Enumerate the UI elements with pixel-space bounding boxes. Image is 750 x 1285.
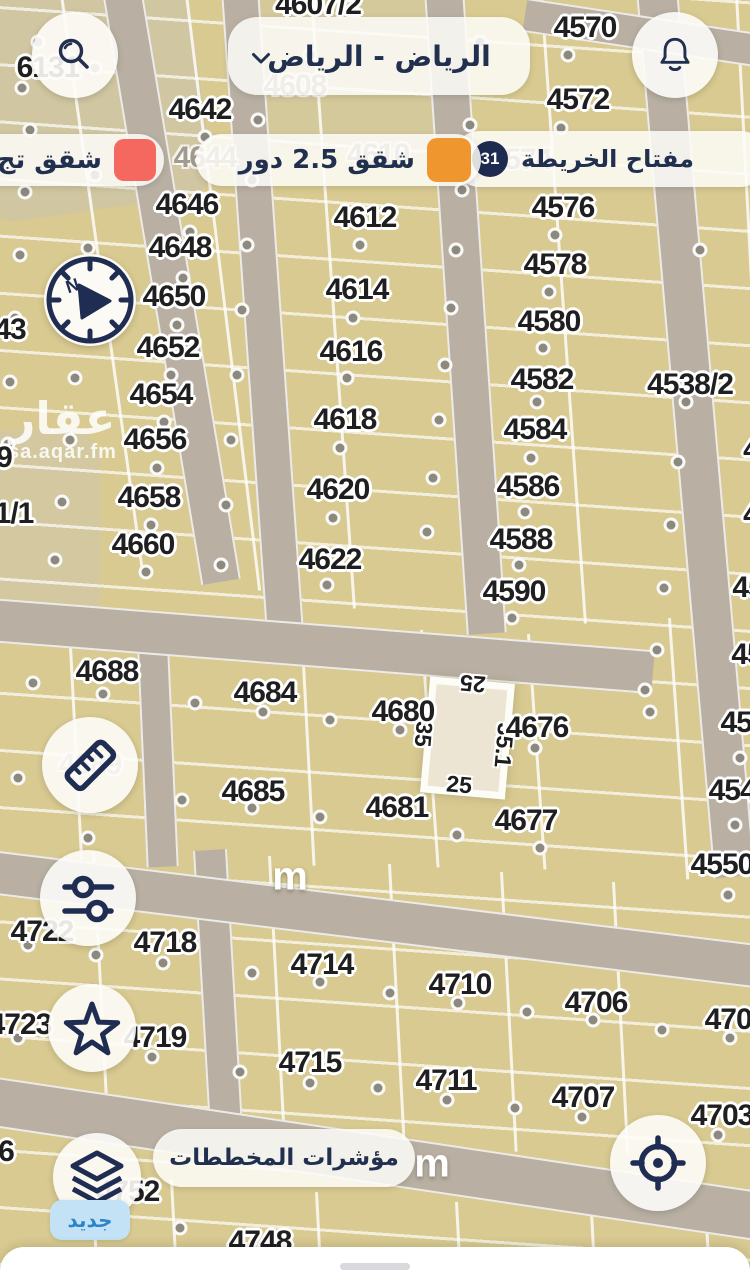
bottom-sheet-handle[interactable] (340, 1263, 410, 1270)
plot-number-label: 4570 (554, 11, 617, 45)
locate-me-button[interactable] (610, 1115, 706, 1211)
plot-dot (55, 495, 70, 510)
plot-dot (219, 498, 234, 513)
plot-dot (450, 828, 465, 843)
plot-dot (655, 1023, 670, 1038)
road-name-label: m (272, 855, 308, 900)
plot-number-label: 4702 (705, 1003, 750, 1037)
plot-number-label: 4548 (709, 774, 750, 808)
plot-dot (18, 185, 33, 200)
plot-dot (139, 565, 154, 580)
plot-dot (524, 451, 539, 466)
watermark: عقار sa.aqar.fm (8, 396, 117, 464)
plot-dimension-top: 25 (458, 669, 486, 698)
plot-dot (214, 558, 229, 573)
watermark-site: sa.aqar.fm (8, 441, 117, 464)
plot-dot (657, 581, 672, 596)
plot-number-label: 4660 (112, 528, 175, 562)
plot-number-label: 45 (731, 638, 750, 672)
plot-dot (733, 751, 748, 766)
plot-number-label: 4677 (495, 804, 558, 838)
plot-number-label: 4658 (118, 481, 181, 515)
plot-dot (313, 810, 328, 825)
plot-dot (638, 683, 653, 698)
plot-number-label: 4 (743, 433, 750, 467)
plot-dot (233, 1065, 248, 1080)
plot-number-label: 4582 (511, 363, 574, 397)
plot-dot (505, 611, 520, 626)
measure-button[interactable] (42, 717, 138, 813)
plot-dot (444, 301, 459, 316)
plot-dot (340, 371, 355, 386)
filters-button[interactable] (40, 850, 136, 946)
plot-dot (333, 441, 348, 456)
plot-number-label: 4612 (334, 201, 397, 235)
plot-dot (81, 831, 96, 846)
legend-swatch-orange (427, 138, 471, 182)
chevron-down-icon (250, 47, 272, 69)
plot-number-label: 6 (0, 1135, 14, 1169)
plot-number-label: 4538/2 (647, 368, 733, 402)
plot-number-label: 4707 (552, 1081, 615, 1115)
legend-item-commercial-apartments[interactable]: شقق تج (0, 134, 164, 186)
plot-dot (245, 966, 260, 981)
plot-number-label: 4715 (279, 1046, 342, 1080)
plot-dot (346, 311, 361, 326)
plot-number-label: 4680 (372, 695, 435, 729)
plot-number-label: 454 (720, 706, 750, 740)
plans-indicators-label: مؤشرات المخططات (169, 1145, 399, 1171)
plot-dot (188, 696, 203, 711)
plot-dot (432, 413, 447, 428)
plot-dot (518, 505, 533, 520)
compass-icon: N (44, 254, 136, 346)
plot-number-label: 43 (0, 313, 26, 347)
sliders-icon (40, 850, 136, 946)
city-selector[interactable]: الرياض - الرياض (228, 17, 530, 95)
plot-number-label: 4642 (169, 93, 232, 127)
plot-number-label: 4646 (156, 188, 219, 222)
star-icon (48, 984, 136, 1072)
plot-number-label: 4650 (143, 280, 206, 314)
plot-number-label: 4580 (518, 305, 581, 339)
plot-number-label: 4 (743, 498, 750, 532)
search-icon (53, 33, 97, 77)
layers-new-badge: جديد (50, 1200, 130, 1240)
plot-number-label: 4676 (506, 711, 569, 745)
city-selector-label: الرياض - الرياض (267, 40, 491, 73)
plot-dot (449, 243, 464, 258)
plot-dot (3, 375, 18, 390)
plot-number-label: 4618 (314, 403, 377, 437)
plot-dot (721, 888, 736, 903)
plot-dot (728, 818, 743, 833)
plot-dot (438, 358, 453, 373)
plot-number-label: 4681 (366, 791, 429, 825)
plot-number-label: 4654 (130, 378, 193, 412)
plot-dot (463, 118, 478, 133)
plot-dot (383, 986, 398, 1001)
plot-number-label: 1/1 (0, 497, 33, 531)
plot-number-label: 4711 (415, 1064, 476, 1098)
plot-number-label: 4576 (532, 191, 595, 225)
plot-number-label: 4572 (547, 83, 610, 117)
plot-number-label: 4685 (222, 775, 285, 809)
legend-item-label: شقق 2.5 دور (239, 145, 415, 175)
plans-indicators-button[interactable]: مؤشرات المخططات (153, 1129, 415, 1187)
plot-dot (671, 455, 686, 470)
plot-number-label: 4614 (326, 273, 389, 307)
plot-number-label: 4710 (429, 968, 492, 1002)
plot-number-label: 4588 (490, 523, 553, 557)
map-key-button[interactable]: 31 مفتاح الخريطة (452, 131, 750, 187)
plot-dot (230, 368, 245, 383)
plot-dot (520, 1005, 535, 1020)
plot-dot (508, 1101, 523, 1116)
road-name-label: m (414, 1142, 450, 1187)
legend-item-apartments-2-5-floors[interactable]: شقق 2.5 دور (196, 134, 481, 186)
plot-number-label: 4550 (691, 848, 750, 882)
plot-dot (251, 113, 266, 128)
crosshair-icon (610, 1115, 706, 1211)
plot-dot (548, 228, 563, 243)
plot-dot (533, 841, 548, 856)
plot-dimension-bottom: 25 (445, 770, 473, 799)
plot-dot (240, 238, 255, 253)
plot-number-label: 4688 (76, 655, 139, 689)
plot-dot (643, 705, 658, 720)
plot-dot (420, 525, 435, 540)
plot-dot (561, 48, 576, 63)
plot-dot (371, 1081, 386, 1096)
plot-number-label: 9 (0, 441, 12, 475)
plot-number-label: 4656 (124, 423, 187, 457)
notifications-button[interactable] (632, 12, 718, 98)
plot-number-label: 4684 (234, 676, 297, 710)
plot-dot (13, 248, 28, 263)
search-button[interactable] (32, 12, 118, 98)
plot-number-label: 4620 (307, 473, 370, 507)
plot-number-label: 4584 (504, 413, 567, 447)
plot-dot (150, 461, 165, 476)
plot-dot (542, 285, 557, 300)
legend-swatch-red (114, 139, 156, 181)
plot-number-label: 4706 (565, 986, 628, 1020)
plot-dot (353, 238, 368, 253)
bell-icon (652, 32, 698, 78)
plot-number-label: 4652 (137, 331, 200, 365)
plot-number-label: 4622 (299, 543, 362, 577)
plot-number-label: 4616 (320, 335, 383, 369)
plot-dot (664, 518, 679, 533)
plot-dot (426, 471, 441, 486)
ruler-icon (42, 717, 138, 813)
plot-dot (320, 578, 335, 593)
plot-number-label: 4586 (497, 470, 560, 504)
watermark-brand: عقار (8, 396, 117, 441)
compass-button[interactable]: N (44, 254, 136, 346)
favorites-button[interactable] (48, 984, 136, 1072)
plot-dot (235, 303, 250, 318)
plot-dot (26, 676, 41, 691)
plot-number-label: 4718 (134, 926, 197, 960)
plot-dot (175, 793, 190, 808)
plot-dot (48, 553, 63, 568)
plot-number-label: 4590 (483, 575, 546, 609)
plot-number-label: 4578 (524, 248, 587, 282)
plot-dot (323, 713, 338, 728)
plot-dot (11, 771, 26, 786)
plot-number-label: 45 (732, 571, 750, 605)
plot-number-label: 4723 (0, 1008, 51, 1042)
plot-dot (693, 243, 708, 258)
plot-dot (68, 371, 83, 386)
plot-dot (326, 511, 341, 526)
plot-dot (512, 558, 527, 573)
map-canvas[interactable]: عقار sa.aqar.fm 25 25 35 35.1 4607/26131… (0, 0, 750, 1285)
bottom-sheet[interactable] (0, 1247, 750, 1285)
plot-dot (89, 948, 104, 963)
plot-dot (536, 341, 551, 356)
plot-number-label: 4648 (149, 231, 212, 265)
map-app: عقار sa.aqar.fm 25 25 35 35.1 4607/26131… (0, 0, 750, 1285)
legend-item-label: شقق تج (0, 145, 102, 175)
plot-dot (173, 1221, 188, 1236)
plot-dot (650, 643, 665, 658)
plot-dot (224, 433, 239, 448)
map-key-label: مفتاح الخريطة (521, 145, 694, 173)
plot-number-label: 4714 (291, 948, 354, 982)
